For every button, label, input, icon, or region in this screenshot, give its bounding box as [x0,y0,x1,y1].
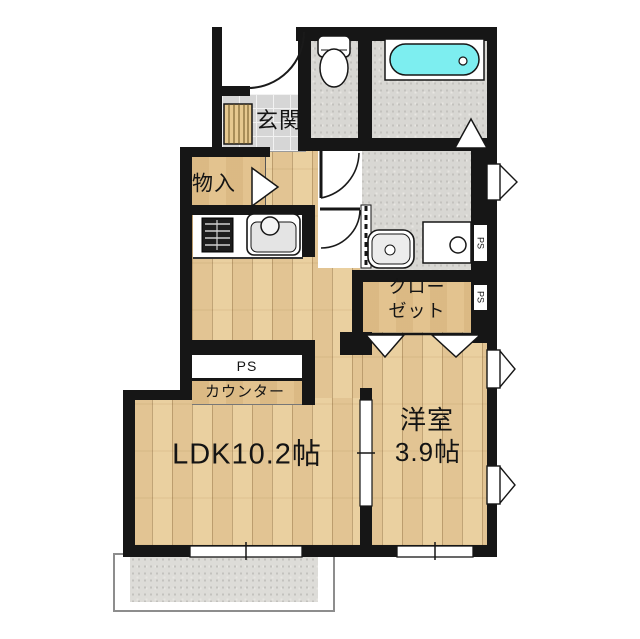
western-room-label-line1: 洋室 [400,407,454,433]
washroom-door-arc [320,209,360,248]
fixtures-layer [0,0,640,639]
closet-bifold-doors-icon [363,334,483,357]
closet-label-line2: ゼット [389,302,446,320]
ldk-sliding-window-icon [190,542,302,560]
washbasin-icon [368,230,414,268]
counter-label: カウンター [205,385,285,400]
pipe-space-shaft-upper-label: PS [476,237,485,249]
closet-label-line1: クロー [389,278,446,296]
washing-machine-pan-icon [423,222,471,263]
western-room-casement-window-lower-icon [487,466,515,504]
toilet-icon [318,36,350,87]
entrance-door-arc [248,32,304,88]
pipe-space-counter-label: PS [237,359,258,373]
bathtub-icon [385,39,484,80]
western-room-sliding-window-icon [397,542,473,560]
storage-door-icon [252,168,278,206]
gas-stove-icon [202,218,233,252]
floor-plan: 玄関 物入 LDK10.2帖 洋室 3.9帖 クロー ゼット カウンター PS … [0,0,640,639]
sliding-door-icon [357,400,375,506]
shoe-cabinet-icon [224,104,252,144]
storage-label: 物入 [192,174,236,195]
bathroom-folding-door-icon [455,119,487,148]
western-room-casement-window-upper-icon [487,350,515,388]
kitchen-sink-icon [247,214,300,255]
ldk-label: LDK10.2帖 [172,441,322,470]
entrance-label: 玄関 [256,110,302,132]
pipe-space-shaft-lower-label: PS [476,291,485,303]
washroom-casement-window-icon [487,164,517,200]
western-room-label-line2: 3.9帖 [395,439,461,465]
toilet-door-arc [321,151,359,198]
